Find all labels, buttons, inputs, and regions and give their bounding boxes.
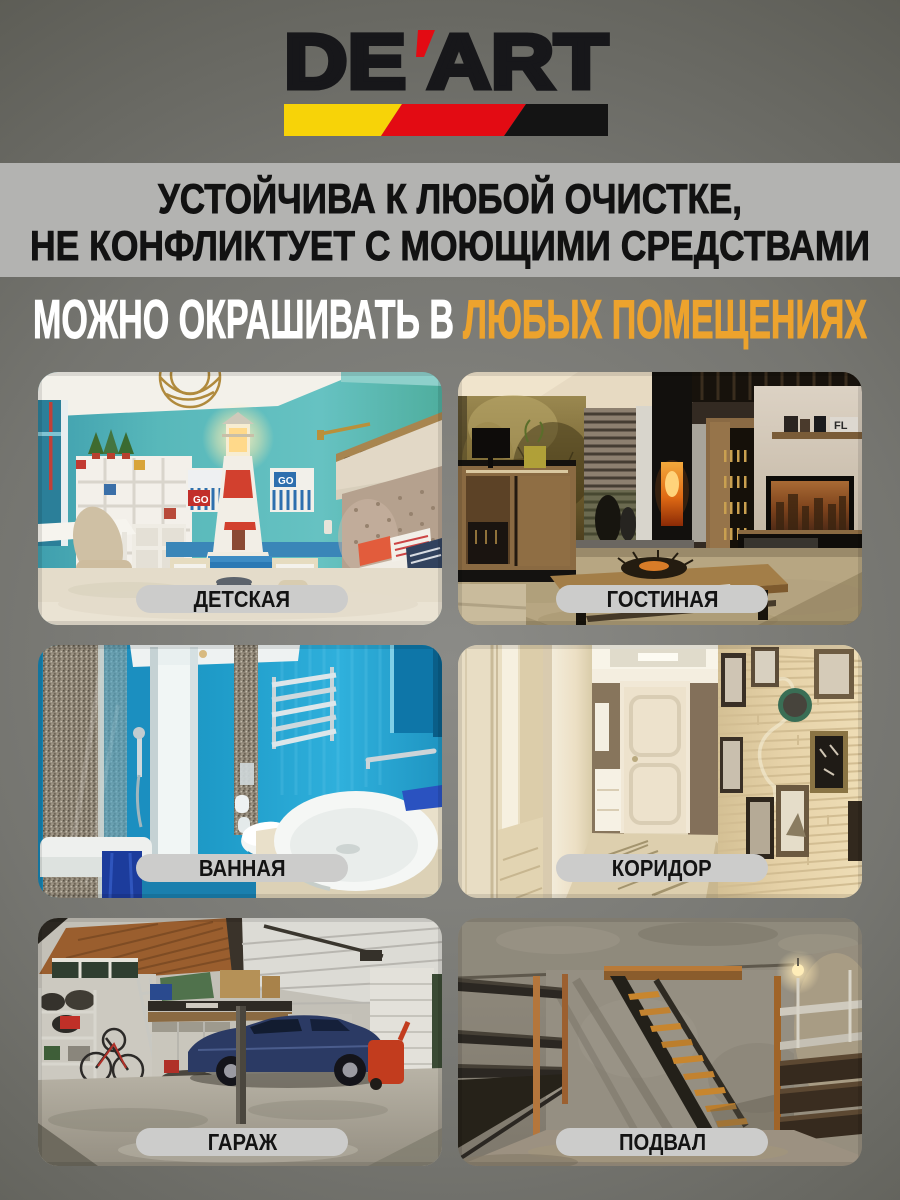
svg-text:УСТОЙЧИВА К ЛЮБОЙ ОЧИСТКЕ,: УСТОЙЧИВА К ЛЮБОЙ ОЧИСТКЕ, [158,174,742,222]
svg-text:DE ART: DE ART [284,19,608,105]
svg-text:FL: FL [834,420,848,432]
svg-text:ЛЮБЫХ ПОМЕЩЕНИЯХ: ЛЮБЫХ ПОМЕЩЕНИЯХ [463,288,867,350]
svg-text:GO: GO [278,476,294,487]
svg-text:МОЖНО ОКРАШИВАТЬ В: МОЖНО ОКРАШИВАТЬ В [33,288,454,350]
svg-text:GO: GO [193,495,209,506]
svg-text:НЕ КОНФЛИКТУЕТ С МОЮЩИМИ СРЕДС: НЕ КОНФЛИКТУЕТ С МОЮЩИМИ СРЕДСТВАМИ [30,222,870,269]
